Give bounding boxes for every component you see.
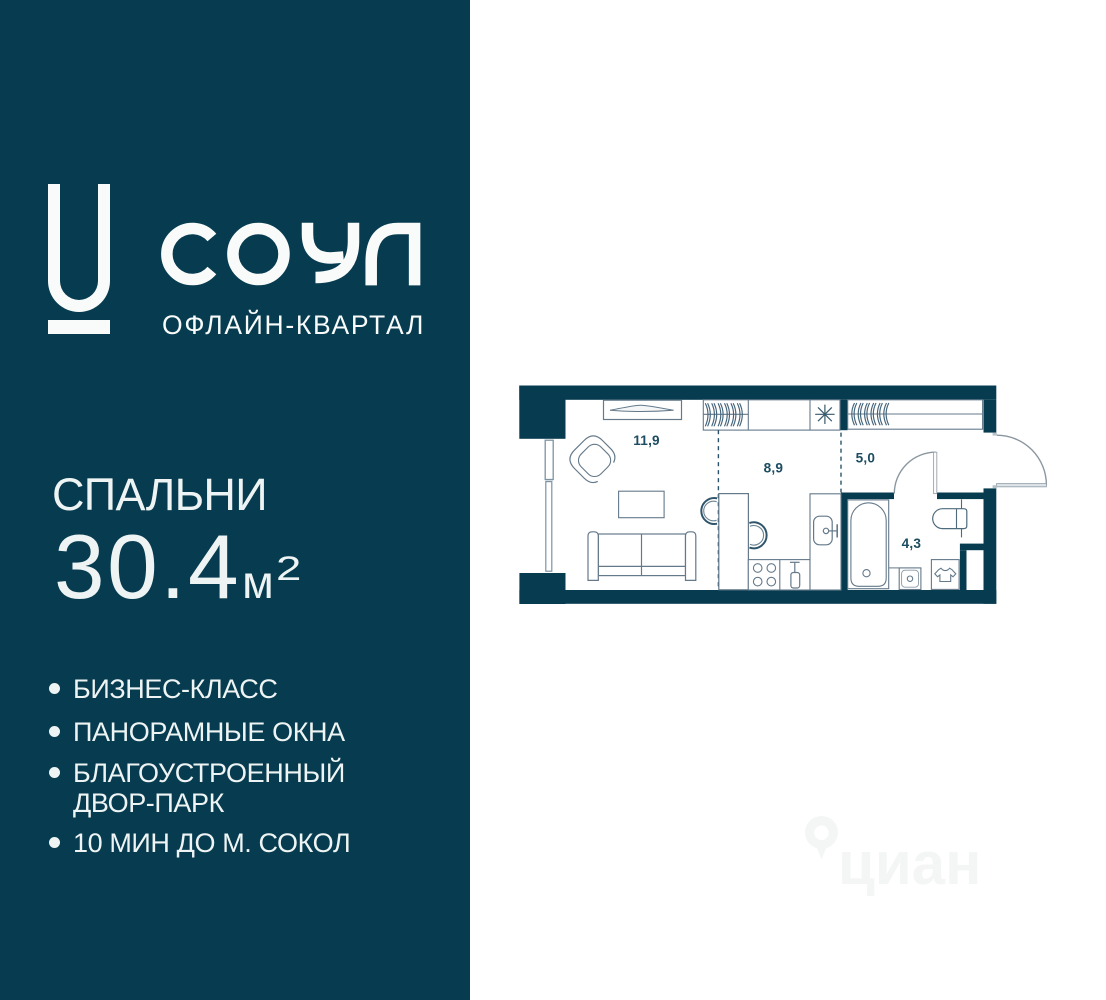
- svg-text:4,3: 4,3: [902, 536, 922, 551]
- svg-text:8,9: 8,9: [764, 461, 784, 476]
- svg-text:5,0: 5,0: [856, 450, 876, 465]
- svg-text:11,9: 11,9: [633, 433, 660, 448]
- svg-text:циан: циан: [838, 830, 981, 897]
